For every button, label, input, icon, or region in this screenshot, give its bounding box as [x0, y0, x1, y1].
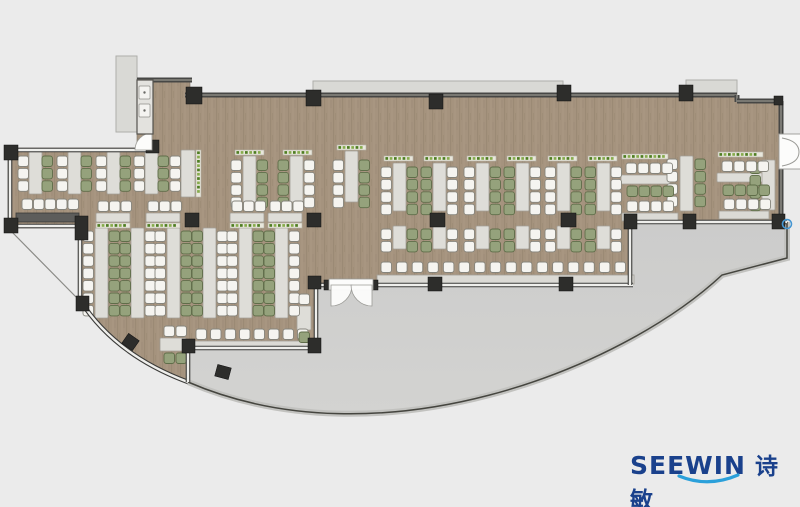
chair [257, 160, 268, 171]
chair [81, 181, 92, 192]
plant-dot [287, 224, 290, 227]
plant-dot [654, 155, 657, 158]
chair [120, 256, 131, 266]
chair [397, 262, 408, 273]
plant-dot [197, 186, 200, 189]
chair [490, 229, 501, 240]
chair [227, 281, 238, 292]
chair [760, 199, 771, 210]
plant-dot [645, 155, 648, 158]
plant-dot [115, 224, 118, 227]
plant-dot [197, 164, 200, 167]
chair [217, 268, 228, 279]
chair [109, 231, 120, 242]
chair [181, 293, 192, 304]
plant-dot [102, 224, 105, 227]
chair [545, 241, 556, 252]
chair [407, 192, 418, 203]
plant-dot [589, 157, 592, 160]
chair [158, 181, 169, 192]
chair [134, 181, 145, 192]
chair [289, 231, 300, 242]
chair [545, 179, 556, 190]
chair [289, 305, 300, 316]
chair [120, 243, 131, 254]
chair [155, 305, 166, 316]
chair [695, 196, 706, 207]
chair [145, 231, 156, 242]
chair [231, 172, 242, 183]
chair [120, 293, 131, 304]
chair [530, 229, 541, 240]
plant-dot [526, 157, 529, 160]
chair [253, 231, 264, 242]
plant-dot [156, 224, 159, 227]
plant-dot [293, 151, 296, 154]
chair [530, 179, 541, 190]
plant-dot [160, 224, 163, 227]
chair [747, 185, 758, 196]
chair [253, 281, 264, 292]
plant-dot [443, 157, 446, 160]
chair [530, 204, 541, 215]
chair [145, 293, 156, 304]
chair [253, 268, 264, 279]
chair [359, 185, 370, 196]
plant-dot [152, 224, 155, 227]
column [308, 276, 321, 289]
chair [299, 294, 310, 305]
chair [211, 329, 222, 340]
chair [571, 167, 582, 178]
chair [57, 156, 68, 167]
plant-dot [106, 224, 109, 227]
column [559, 277, 573, 291]
chair [464, 204, 475, 215]
chair [196, 329, 207, 340]
chair [695, 184, 706, 195]
plant-dot [398, 157, 401, 160]
plant-dot [169, 224, 172, 227]
chair [83, 256, 94, 266]
chair [530, 241, 541, 252]
shaft-dot [143, 109, 145, 111]
chair [447, 229, 458, 240]
table [290, 156, 303, 202]
chair [722, 161, 733, 172]
chair [585, 204, 596, 215]
chair [254, 329, 265, 340]
chair [145, 281, 156, 292]
chair [134, 168, 145, 179]
plant-dot [394, 157, 397, 160]
chair [663, 201, 674, 212]
chair [627, 186, 638, 197]
chair [736, 199, 747, 210]
table [345, 151, 358, 202]
column [307, 213, 321, 227]
chair [192, 281, 203, 292]
plant-dot [197, 156, 200, 159]
chair [145, 305, 156, 316]
chair [96, 156, 107, 167]
plant-dot [289, 151, 292, 154]
plant-dot [732, 153, 735, 156]
chair [611, 241, 622, 252]
plant-dot [473, 157, 476, 160]
chair [257, 185, 268, 196]
seewin-logo: SEEWIN诗敏 [630, 447, 800, 493]
chair [109, 293, 120, 304]
chair [231, 185, 242, 196]
column [186, 87, 202, 104]
chair [758, 161, 769, 172]
chair [381, 229, 392, 240]
plant-dot [236, 151, 239, 154]
logo-swoosh-icon [676, 473, 742, 487]
chair [304, 185, 315, 196]
chair [264, 231, 275, 242]
chair [155, 243, 166, 254]
plant-dot [338, 146, 341, 149]
chair [407, 229, 418, 240]
chair [109, 243, 120, 254]
plant-dot [165, 224, 168, 227]
chair [359, 160, 370, 171]
chair [109, 268, 120, 279]
chair [42, 156, 53, 167]
column [774, 96, 783, 105]
chair [264, 256, 275, 266]
plant-dot [425, 157, 428, 160]
plant-dot [728, 153, 731, 156]
chair [407, 241, 418, 252]
chair [490, 204, 501, 215]
chair [18, 168, 29, 179]
table [597, 163, 610, 211]
chair [663, 186, 674, 197]
column [557, 85, 571, 101]
chair [545, 204, 556, 215]
plant-dot [407, 157, 410, 160]
chair [381, 204, 392, 215]
chair [181, 256, 192, 266]
sideboard-counter [16, 213, 79, 222]
chair [192, 268, 203, 279]
plant-dot [468, 157, 471, 160]
table [433, 226, 446, 249]
chair [109, 281, 120, 292]
chair [639, 201, 650, 212]
chair [447, 204, 458, 215]
column [683, 214, 696, 229]
chair [412, 262, 423, 273]
chair [68, 199, 79, 210]
chair [611, 204, 622, 215]
chair [638, 163, 649, 174]
plant-dot [197, 173, 200, 176]
chair [639, 186, 650, 197]
chair [264, 305, 275, 316]
chair [253, 293, 264, 304]
chair [282, 201, 293, 212]
chair [333, 160, 344, 171]
table [597, 226, 610, 249]
chair [269, 329, 280, 340]
chair [585, 167, 596, 178]
plant-dot [245, 151, 248, 154]
chair [155, 256, 166, 266]
chair [421, 167, 432, 178]
chair [264, 243, 275, 254]
table [203, 228, 216, 318]
plant-dot [567, 157, 570, 160]
chair [537, 262, 548, 273]
table [557, 163, 570, 211]
chair [407, 179, 418, 190]
plant-dot [347, 146, 350, 149]
column [308, 338, 321, 353]
table [107, 152, 120, 194]
plant-dot [302, 151, 305, 154]
chair [748, 199, 759, 210]
plant-dot [249, 151, 252, 154]
plant-dot [513, 157, 516, 160]
chair [504, 229, 515, 240]
table [68, 152, 81, 194]
chair [289, 268, 300, 279]
plant-dot [197, 160, 200, 163]
plant-dot [611, 157, 614, 160]
chair [170, 181, 181, 192]
chair [192, 243, 203, 254]
table [393, 226, 406, 249]
chair [289, 256, 300, 266]
chair [568, 262, 579, 273]
chair [34, 199, 45, 210]
table [476, 226, 489, 249]
chair [227, 293, 238, 304]
column [561, 213, 576, 227]
plant-dot [291, 224, 294, 227]
plant-dot [598, 157, 601, 160]
chair [96, 168, 107, 179]
chair [545, 192, 556, 203]
chair [545, 167, 556, 178]
plant-dot [360, 146, 363, 149]
chair [289, 281, 300, 292]
table [131, 228, 144, 318]
column [185, 213, 199, 227]
plant-dot [745, 153, 748, 156]
chair [155, 293, 166, 304]
table [243, 156, 256, 202]
chair [171, 201, 182, 212]
chair [421, 179, 432, 190]
chair [255, 201, 266, 212]
chair [42, 181, 53, 192]
chair [45, 199, 56, 210]
chair [407, 204, 418, 215]
chair [333, 185, 344, 196]
floor-plan-drawing [0, 0, 800, 507]
chair [571, 241, 582, 252]
plant-dot [110, 224, 113, 227]
table [145, 152, 158, 194]
chair [278, 160, 289, 171]
railing-line [10, 230, 76, 297]
chair [626, 163, 637, 174]
chair [83, 268, 94, 279]
plant-dot [530, 157, 533, 160]
column [76, 296, 89, 311]
plant-dot [434, 157, 437, 160]
plant-dot [719, 153, 722, 156]
chair [447, 179, 458, 190]
chair [359, 172, 370, 183]
chair [42, 168, 53, 179]
plant-dot [197, 169, 200, 172]
floor-plan-page: SEEWIN诗敏 [0, 0, 800, 507]
chair [333, 197, 344, 208]
chair [381, 167, 392, 178]
chair [109, 256, 120, 266]
chair [148, 201, 159, 212]
plant-dot [481, 157, 484, 160]
chair [83, 281, 94, 292]
chair [545, 229, 556, 240]
chair [244, 201, 255, 212]
chair [304, 172, 315, 183]
plant-dot [521, 157, 524, 160]
chair [231, 160, 242, 171]
chair [278, 172, 289, 183]
plant-dot [257, 224, 260, 227]
plant-dot [306, 151, 309, 154]
chair [257, 172, 268, 183]
chair [490, 192, 501, 203]
chair [571, 179, 582, 190]
plant-dot [240, 224, 243, 227]
chair [155, 281, 166, 292]
chair [289, 243, 300, 254]
chair [464, 229, 475, 240]
chair [599, 262, 610, 273]
chair [490, 262, 501, 273]
chair [278, 185, 289, 196]
chair [134, 156, 145, 167]
column [182, 339, 195, 353]
chair [304, 160, 315, 171]
chair [181, 281, 192, 292]
chair [227, 243, 238, 254]
chair [475, 262, 486, 273]
chair [192, 293, 203, 304]
chair [217, 281, 228, 292]
table [268, 213, 302, 222]
chair [447, 167, 458, 178]
chair [504, 179, 515, 190]
plant-dot [430, 157, 433, 160]
chair [264, 281, 275, 292]
plant-dot [594, 157, 597, 160]
chair [232, 201, 243, 212]
chair [443, 262, 454, 273]
chair [120, 168, 131, 179]
chair [57, 168, 68, 179]
chair [120, 268, 131, 279]
chair [83, 243, 94, 254]
plant-dot [97, 224, 100, 227]
chair [521, 262, 532, 273]
chair [289, 293, 300, 304]
chair [120, 231, 131, 242]
table [239, 228, 252, 318]
plant-dot [390, 157, 393, 160]
chair [459, 262, 470, 273]
chair [181, 243, 192, 254]
chair [611, 192, 622, 203]
plant-dot [356, 146, 359, 149]
chair [627, 201, 638, 212]
chair [615, 262, 626, 273]
chair [120, 181, 131, 192]
table [96, 213, 130, 222]
chair [120, 156, 131, 167]
table [557, 226, 570, 249]
plant-dot [724, 153, 727, 156]
chair [724, 199, 735, 210]
chair [464, 192, 475, 203]
plant-dot [662, 155, 665, 158]
plant-dot [549, 157, 552, 160]
chair [270, 201, 281, 212]
chair [585, 229, 596, 240]
chair [333, 172, 344, 183]
chair [181, 305, 192, 316]
plant-dot [258, 151, 261, 154]
plant-dot [649, 155, 652, 158]
chair [504, 204, 515, 215]
chair [57, 199, 68, 210]
plant-dot [562, 157, 565, 160]
plant-dot [351, 146, 354, 149]
chair [217, 305, 228, 316]
plant-dot [571, 157, 574, 160]
chair [490, 241, 501, 252]
column [428, 277, 442, 291]
chair [750, 175, 761, 186]
table [181, 150, 195, 197]
chair [81, 156, 92, 167]
table [433, 163, 446, 211]
chair [264, 268, 275, 279]
chair [170, 156, 181, 167]
plant-dot [197, 182, 200, 185]
table [516, 163, 529, 211]
plant-dot [119, 224, 122, 227]
chair [421, 192, 432, 203]
chair [81, 168, 92, 179]
chair [735, 185, 746, 196]
chair [611, 167, 622, 178]
chair [155, 268, 166, 279]
chair [585, 179, 596, 190]
table [516, 226, 529, 249]
plant-dot [197, 177, 200, 180]
chair [421, 229, 432, 240]
chair [651, 201, 662, 212]
